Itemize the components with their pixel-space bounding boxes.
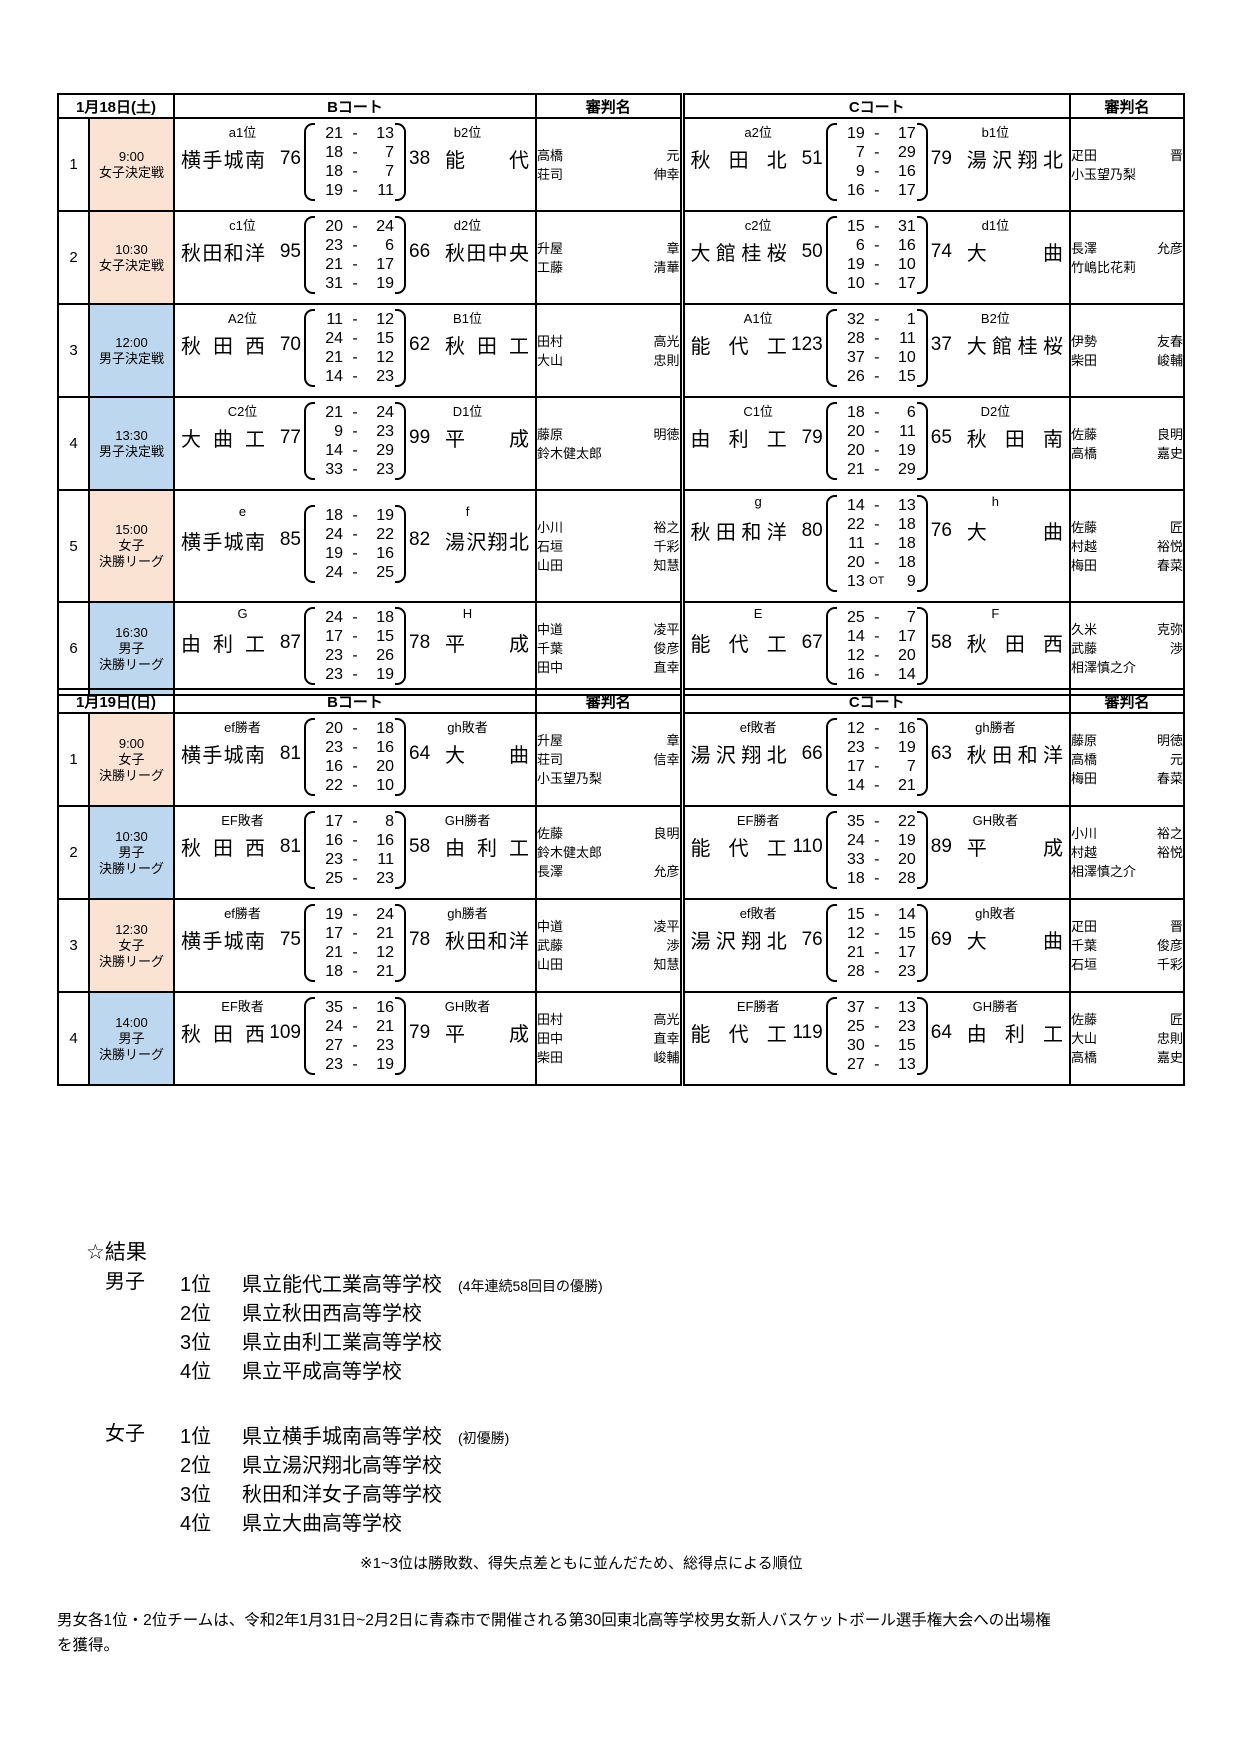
- bracket-left-icon: [304, 309, 315, 387]
- referee-name-part: 荘司: [537, 750, 563, 769]
- court-c-cell: A1位能代工12332-128-1137-1026-15B2位37大館桂桜: [682, 304, 1070, 397]
- quarter-line: 20-11: [837, 422, 917, 441]
- quarter-scores: 20-2423-621-1731-19: [304, 216, 406, 294]
- quarter-score-right: 10: [889, 348, 916, 367]
- right-team-block: GH勝者64由利工: [928, 996, 1063, 1047]
- bracket-left-icon: [304, 997, 315, 1075]
- quarter-score-left: 19: [316, 181, 343, 200]
- bracket-left-icon: [826, 495, 837, 592]
- referee-name: 藤原明徳: [1071, 731, 1183, 750]
- quarter-score-right: 15: [889, 924, 916, 943]
- quarter-scores: 32-128-1137-1026-15: [826, 309, 928, 387]
- quarter-scores: 24-1817-1523-2623-19: [304, 607, 406, 685]
- match-type: 女子: [90, 752, 173, 768]
- quarter-score-right: 6: [889, 403, 916, 422]
- quarter-score-left: 32: [838, 310, 865, 329]
- quarter-line: 23-6: [315, 236, 395, 255]
- tiebreak-note: ※1~3位は勝敗数、得失点差ともに並んだため、総得点による順位: [360, 1552, 803, 1573]
- team-score: 38: [406, 148, 445, 170]
- quarter-score-left: 21: [316, 943, 343, 962]
- referee-name: 佐藤良明: [537, 824, 680, 843]
- quarter-score-left: 12: [838, 646, 865, 665]
- team-score: 78: [406, 929, 445, 951]
- quarter-separator: -: [865, 776, 889, 795]
- seed-label: e: [181, 504, 304, 521]
- quarter-score-left: 13: [838, 572, 865, 591]
- court-b-cell: EF敗者秋田西8117-816-1623-1125-23GH勝者58由利工: [174, 806, 536, 899]
- referee-name-part: 千葉: [1071, 936, 1097, 955]
- quarter-separator: -: [343, 1055, 367, 1074]
- quarter-separator: -: [343, 441, 367, 460]
- quarter-score-left: 31: [316, 274, 343, 293]
- team-score: 78: [406, 632, 445, 654]
- bracket-right-icon: [917, 718, 928, 796]
- team-name: 由利工: [445, 832, 529, 861]
- quarter-separator: -: [343, 646, 367, 665]
- quarter-separator: -: [865, 1055, 889, 1074]
- quarter-score-right: 13: [889, 496, 916, 515]
- referee-name-part: 峻輔: [1157, 351, 1183, 370]
- quarter-score-left: 17: [316, 627, 343, 646]
- quarter-score-right: 20: [889, 646, 916, 665]
- quarter-line: 14-17: [837, 627, 917, 646]
- referee-name: 千葉俊彦: [537, 639, 680, 658]
- quarter-score-left: 14: [838, 776, 865, 795]
- quarter-score-right: 19: [367, 506, 394, 525]
- quarter-score-right: 7: [889, 757, 916, 776]
- team-row: 湯沢翔北76: [691, 925, 826, 954]
- right-team-block: f82湯沢翔北: [406, 504, 529, 555]
- match-type: 男子決定戦: [90, 444, 173, 460]
- court-c-cell: c2位大館桂桜5015-316-1619-1010-17d1位74大曲: [682, 211, 1070, 304]
- quarter-separator: -: [343, 850, 367, 869]
- team-name: 秋田北: [691, 144, 787, 173]
- seed-label: EF敗者: [181, 996, 304, 1013]
- referee-name: 石垣千彩: [537, 537, 680, 556]
- quarter-line: 13OT9: [837, 572, 917, 591]
- bracket-left-icon: [826, 607, 837, 685]
- quarter-score-left: 14: [838, 496, 865, 515]
- match-time: 12:00: [90, 335, 173, 351]
- match-court-c: ef敗者湯沢翔北7615-1412-1521-1728-23gh敗者69大曲: [685, 900, 1070, 991]
- seed-label: C1位: [691, 401, 826, 418]
- seed-label: g: [691, 494, 826, 511]
- quarter-line: 18-19: [315, 506, 395, 525]
- team-score: 79: [787, 427, 826, 449]
- referee-name-part: 田中: [537, 1029, 563, 1048]
- quarter-line: 10-17: [837, 274, 917, 293]
- quarter-score-left: 18: [316, 962, 343, 981]
- referee-name: 武藤渉: [1071, 639, 1183, 658]
- quarter-line: 19-11: [315, 181, 395, 200]
- bracket-right-icon: [917, 402, 928, 480]
- referee-name-part: 凌平: [653, 620, 679, 639]
- referee-name-part: 相澤慎之介: [1071, 658, 1136, 677]
- quarter-line: 21-12: [315, 348, 395, 367]
- quarter-lines: 32-128-1137-1026-15: [837, 309, 917, 387]
- match-court-c: ef敗者湯沢翔北6612-1623-1917-714-21gh勝者63秋田和洋: [685, 714, 1070, 805]
- referee-name: 小川裕之: [1071, 824, 1183, 843]
- quarter-score-left: 24: [316, 608, 343, 627]
- bracket-left-icon: [826, 123, 837, 201]
- quarter-line: 28-11: [837, 329, 917, 348]
- quarter-score-right: 8: [367, 812, 394, 831]
- left-team-block: ef敗者湯沢翔北76: [691, 903, 826, 954]
- time-cell: 13:30男子決定戦: [89, 397, 174, 490]
- right-team-block: B2位37大館桂桜: [928, 308, 1063, 359]
- quarter-score-left: 14: [316, 441, 343, 460]
- quarter-line: 21-17: [837, 943, 917, 962]
- quarter-scores: 14-1322-1811-1820-1813OT9: [826, 495, 928, 592]
- seed-label: A2位: [181, 308, 304, 325]
- team-row: 63秋田和洋: [928, 739, 1063, 768]
- match-type: 男子決定戦: [90, 351, 173, 367]
- team-row: 65秋田南: [928, 423, 1063, 452]
- quarter-score-left: 21: [838, 943, 865, 962]
- rank-note: (4年連続58回目の優勝): [458, 1276, 603, 1296]
- referee-name-part: 忠則: [1157, 1029, 1183, 1048]
- team-name: 由利工: [691, 423, 787, 452]
- referee-name-part: 章: [666, 731, 679, 750]
- quarter-score-left: 21: [316, 348, 343, 367]
- time-cell: 9:00女子決定戦: [89, 118, 174, 211]
- quarter-scores: 37-1325-2330-1527-13: [826, 997, 928, 1075]
- team-row: 69大曲: [928, 925, 1063, 954]
- referee-b-cell: 高橋元荘司伸幸: [536, 118, 682, 211]
- team-row: 82湯沢翔北: [406, 526, 529, 555]
- referee-name-part: 中道: [537, 917, 563, 936]
- match-court-c: EF勝者能代工11937-1325-2330-1527-13GH勝者64由利工: [685, 993, 1070, 1084]
- seed-label: gh勝者: [928, 717, 1063, 734]
- quarter-score-right: 19: [889, 738, 916, 757]
- row-number-cell: 5: [58, 490, 89, 602]
- quarter-separator: -: [343, 348, 367, 367]
- quarter-line: 33-23: [315, 460, 395, 479]
- quarter-separator: -: [865, 962, 889, 981]
- referee-c-cell: 久米克弥武藤渉相澤慎之介: [1070, 602, 1184, 695]
- referee-name-part: 允彦: [1157, 239, 1183, 258]
- team-row: 37大館桂桜: [928, 330, 1063, 359]
- team-score: 76: [265, 148, 304, 170]
- quarter-score-right: 16: [889, 719, 916, 738]
- referee-name-part: 忠則: [653, 351, 679, 370]
- court-b-cell: c1位秋田和洋9520-2423-621-1731-19d2位66秋田中央: [174, 211, 536, 304]
- quarter-line: 24-18: [315, 608, 395, 627]
- team-name: 横手城南: [181, 925, 265, 954]
- quarter-score-right: 25: [367, 563, 394, 582]
- referee-name-part: 直幸: [653, 1029, 679, 1048]
- quarter-score-left: 23: [316, 1055, 343, 1074]
- quarter-score-left: 17: [316, 924, 343, 943]
- left-team-block: EF敗者秋田西109: [181, 996, 304, 1047]
- row-number-cell: 4: [58, 992, 89, 1085]
- quarter-score-left: 11: [316, 310, 343, 329]
- match-type: 決勝リーグ: [90, 768, 173, 784]
- bracket-right-icon: [917, 811, 928, 889]
- referee-name: 鈴木健太郎: [537, 444, 680, 463]
- time-cell: 10:30女子決定戦: [89, 211, 174, 304]
- match-type: 決勝リーグ: [90, 554, 173, 570]
- referee-name: 田中直幸: [537, 658, 680, 677]
- left-team-block: a1位横手城南76: [181, 122, 304, 173]
- match-time: 15:00: [90, 522, 173, 538]
- quarter-score-left: 21: [316, 255, 343, 274]
- match-type: 決勝リーグ: [90, 1047, 173, 1063]
- quarter-scores: 18-620-1120-1921-29: [826, 402, 928, 480]
- match-time: 10:30: [90, 829, 173, 845]
- quarter-score-right: 10: [367, 776, 394, 795]
- quarter-score-left: 12: [838, 719, 865, 738]
- quarter-score-left: 18: [838, 403, 865, 422]
- team-score: 99: [406, 427, 445, 449]
- match-row: 19:00女子決勝リーグef勝者横手城南8120-1823-1616-2022-…: [58, 713, 1184, 806]
- quarter-line: 20-24: [315, 217, 395, 236]
- team-row: 76大曲: [928, 516, 1063, 545]
- referee-name-part: 清華: [653, 258, 679, 277]
- quarter-separator: -: [865, 924, 889, 943]
- bracket-right-icon: [395, 607, 406, 685]
- quarter-scores: 35-1624-2127-2323-19: [304, 997, 406, 1075]
- referee-name-part: 良明: [1157, 425, 1183, 444]
- team-score: 82: [406, 529, 445, 551]
- row-number-cell: 1: [58, 713, 89, 806]
- quarter-score-left: 19: [838, 255, 865, 274]
- quarter-separator: -: [343, 460, 367, 479]
- quarter-score-right: 16: [367, 998, 394, 1017]
- referee-name-part: 大山: [537, 351, 563, 370]
- rank-label: 2位: [180, 1297, 242, 1326]
- quarter-score-left: 21: [316, 403, 343, 422]
- team-name: 能代工: [691, 330, 787, 359]
- quarter-score-right: 7: [367, 162, 394, 181]
- referee-name-part: 春菜: [1157, 769, 1183, 788]
- referee-name-part: 鈴木健太郎: [537, 444, 602, 463]
- quarter-scores: 15-1412-1521-1728-23: [826, 904, 928, 982]
- referee-name-part: 元: [666, 146, 679, 165]
- quarter-score-right: 16: [889, 162, 916, 181]
- quarter-scores: 25-714-1712-2016-14: [826, 607, 928, 685]
- bracket-right-icon: [395, 309, 406, 387]
- referee-name-part: 克弥: [1157, 620, 1183, 639]
- quarter-score-left: 23: [316, 665, 343, 684]
- referee-name-part: 石垣: [537, 537, 563, 556]
- quarter-line: 30-15: [837, 1036, 917, 1055]
- referee-name: 荘司信幸: [537, 750, 680, 769]
- referee-name-part: 章: [666, 239, 679, 258]
- seed-label: F: [928, 606, 1063, 623]
- match-type: 女子決定戦: [90, 258, 173, 274]
- match-type: 男子: [90, 641, 173, 657]
- bracket-left-icon: [304, 718, 315, 796]
- referee-name: 田村高光: [537, 1010, 680, 1029]
- team-name: 平成: [445, 1018, 529, 1047]
- row-number-cell: 3: [58, 304, 89, 397]
- quarter-line: 23-19: [315, 1055, 395, 1074]
- referee-name: 山田知慧: [537, 556, 680, 575]
- referee-name-part: 升屋: [537, 731, 563, 750]
- referee-name: 高橋嘉史: [1071, 444, 1183, 463]
- team-row: 79平成: [406, 1018, 529, 1047]
- time-cell: 12:00男子決定戦: [89, 304, 174, 397]
- tournament-result-sheet: 1月18日(土) Bコート 審判名 Cコート 審判名 19:00女子決定戦a1位…: [0, 0, 1240, 1754]
- referee-name-part: 山田: [537, 955, 563, 974]
- quarter-score-left: 20: [838, 441, 865, 460]
- referee-name-part: 村越: [1071, 843, 1097, 862]
- right-team-block: d2位66秋田中央: [406, 215, 529, 266]
- quarter-score-right: 6: [367, 236, 394, 255]
- match-court-b: A2位秋田西7011-1224-1521-1214-23B1位62秋田工: [175, 305, 535, 396]
- quarter-score-right: 17: [889, 124, 916, 143]
- referee-name: 佐藤匠: [1071, 518, 1183, 537]
- bracket-left-icon: [304, 607, 315, 685]
- quarter-line: 22-18: [837, 515, 917, 534]
- quarter-separator: -: [343, 236, 367, 255]
- court-c-cell: C1位由利工7918-620-1120-1921-29D2位65秋田南: [682, 397, 1070, 490]
- team-score: 63: [928, 743, 967, 765]
- bracket-left-icon: [826, 811, 837, 889]
- team-score: 85: [265, 529, 304, 551]
- match-row: 210:30女子決定戦c1位秋田和洋9520-2423-621-1731-19d…: [58, 211, 1184, 304]
- match-court-b: C2位大曲工7721-249-2314-2933-23D1位99平成: [175, 398, 535, 489]
- quarter-score-left: 19: [316, 905, 343, 924]
- quarter-score-right: 18: [889, 553, 916, 572]
- quarter-line: 15-14: [837, 905, 917, 924]
- schedule-table-jan19: 1月19日(日) Bコート 審判名 Cコート 審判名 19:00女子決勝リーグe…: [57, 688, 1185, 1086]
- seed-label: B2位: [928, 308, 1063, 325]
- seed-label: c1位: [181, 215, 304, 232]
- referee-c-cell: 小川裕之村越裕悦相澤慎之介: [1070, 806, 1184, 899]
- bracket-right-icon: [395, 505, 406, 583]
- quarter-score-left: 25: [838, 608, 865, 627]
- match-court-c: E能代工6725-714-1712-2016-14F58秋田西: [685, 603, 1070, 694]
- team-score: 95: [265, 241, 304, 263]
- seed-label: C2位: [181, 401, 304, 418]
- team-name: 大館桂桜: [967, 330, 1063, 359]
- quarter-lines: 21-1318-718-719-11: [315, 123, 395, 201]
- referee-name-part: 渉: [666, 936, 679, 955]
- quarter-separator: -: [865, 905, 889, 924]
- quarter-line: 24-19: [837, 831, 917, 850]
- referee-name-part: 大山: [1071, 1029, 1097, 1048]
- quarter-score-right: 23: [889, 1017, 916, 1036]
- referee-name: 高橋嘉史: [1071, 1048, 1183, 1067]
- court-b-header: Bコート: [174, 689, 536, 713]
- match-row: 413:30男子決定戦C2位大曲工7721-249-2314-2933-23D1…: [58, 397, 1184, 490]
- quarter-score-right: 10: [889, 255, 916, 274]
- quarter-lines: 17-816-1623-1125-23: [315, 811, 395, 889]
- quarter-score-left: 16: [838, 181, 865, 200]
- bracket-right-icon: [395, 904, 406, 982]
- seed-label: ef勝者: [181, 717, 304, 734]
- left-team-block: ef敗者湯沢翔北66: [691, 717, 826, 768]
- quarter-score-right: 13: [367, 124, 394, 143]
- quarter-separator: -: [865, 460, 889, 479]
- quarter-separator: -: [343, 217, 367, 236]
- quarter-separator: -: [865, 627, 889, 646]
- team-name: 湯沢翔北: [691, 925, 787, 954]
- quarter-lines: 19-2417-2121-1218-21: [315, 904, 395, 982]
- referee-name-part: 石垣: [1071, 955, 1097, 974]
- quarter-score-left: 24: [316, 525, 343, 544]
- referee-name-part: 俊彦: [1157, 936, 1183, 955]
- quarter-line: 16-17: [837, 181, 917, 200]
- quarter-separator: -: [343, 1036, 367, 1055]
- quarter-lines: 25-714-1712-2016-14: [837, 607, 917, 685]
- school-name: 県立湯沢翔北高等学校: [242, 1449, 442, 1478]
- team-row: 由利工79: [691, 423, 826, 452]
- match-type: 決勝リーグ: [90, 861, 173, 877]
- bracket-left-icon: [826, 402, 837, 480]
- referee-name-part: 直幸: [653, 658, 679, 677]
- time-cell: 15:00女子決勝リーグ: [89, 490, 174, 602]
- match-court-b: e横手城南8518-1924-2219-1624-25f82湯沢翔北: [175, 501, 535, 592]
- seed-label: EF勝者: [691, 810, 826, 827]
- quarter-score-right: 29: [889, 460, 916, 479]
- quarter-line: 26-15: [837, 367, 917, 386]
- team-row: 湯沢翔北66: [691, 739, 826, 768]
- court-b-cell: C2位大曲工7721-249-2314-2933-23D1位99平成: [174, 397, 536, 490]
- team-score: 123: [787, 334, 826, 356]
- quarter-score-right: 19: [889, 831, 916, 850]
- team-name: 秋田和洋: [445, 925, 529, 954]
- right-team-block: GH勝者58由利工: [406, 810, 529, 861]
- quarter-separator: -: [865, 162, 889, 181]
- team-name: 秋田西: [967, 628, 1063, 657]
- quarter-score-left: 11: [838, 534, 865, 553]
- bracket-left-icon: [826, 997, 837, 1075]
- quarter-separator: -: [343, 255, 367, 274]
- team-score: 110: [787, 836, 826, 858]
- referee-name-part: 荘司: [537, 165, 563, 184]
- team-row: 横手城南75: [181, 925, 304, 954]
- referee-name-part: 梅田: [1071, 769, 1097, 788]
- quarter-line: 25-23: [837, 1017, 917, 1036]
- team-row: 64大曲: [406, 739, 529, 768]
- quarter-separator: -: [343, 831, 367, 850]
- match-row: 312:30女子決勝リーグef勝者横手城南7519-2417-2121-1218…: [58, 899, 1184, 992]
- quarter-score-left: 22: [316, 776, 343, 795]
- quarter-scores: 11-1224-1521-1214-23: [304, 309, 406, 387]
- quarter-separator: -: [865, 217, 889, 236]
- referee-name: 梅田春菜: [1071, 769, 1183, 788]
- match-time: 9:00: [90, 736, 173, 752]
- quarter-line: 27-13: [837, 1055, 917, 1074]
- left-team-block: G由利工87: [181, 606, 304, 657]
- quarter-line: 17-8: [315, 812, 395, 831]
- quarter-separator: -: [343, 869, 367, 888]
- quarter-line: 12-15: [837, 924, 917, 943]
- team-name: 能代工: [691, 832, 787, 861]
- match-row: 414:00男子決勝リーグEF敗者秋田西10935-1624-2127-2323…: [58, 992, 1184, 1085]
- referee-name-part: 千彩: [1157, 955, 1183, 974]
- quarter-score-right: 24: [367, 217, 394, 236]
- quarter-separator: -: [343, 665, 367, 684]
- referee-name-part: 明徳: [1157, 731, 1183, 750]
- match-time: 16:30: [90, 625, 173, 641]
- quarter-separator: -: [865, 403, 889, 422]
- referee-name-part: 高橋: [1071, 1048, 1097, 1067]
- quarter-line: 19-17: [837, 124, 917, 143]
- referee-name-part: 田村: [537, 1010, 563, 1029]
- referee-name-part: 凌平: [653, 917, 679, 936]
- quarter-score-right: 12: [367, 310, 394, 329]
- quarter-separator: -: [865, 236, 889, 255]
- referee-name: 久米克弥: [1071, 620, 1183, 639]
- quarter-separator: -: [343, 812, 367, 831]
- quarter-separator: -: [865, 665, 889, 684]
- referee-c-cell: 佐藤良明高橋嘉史: [1070, 397, 1184, 490]
- quarter-score-right: 1: [889, 310, 916, 329]
